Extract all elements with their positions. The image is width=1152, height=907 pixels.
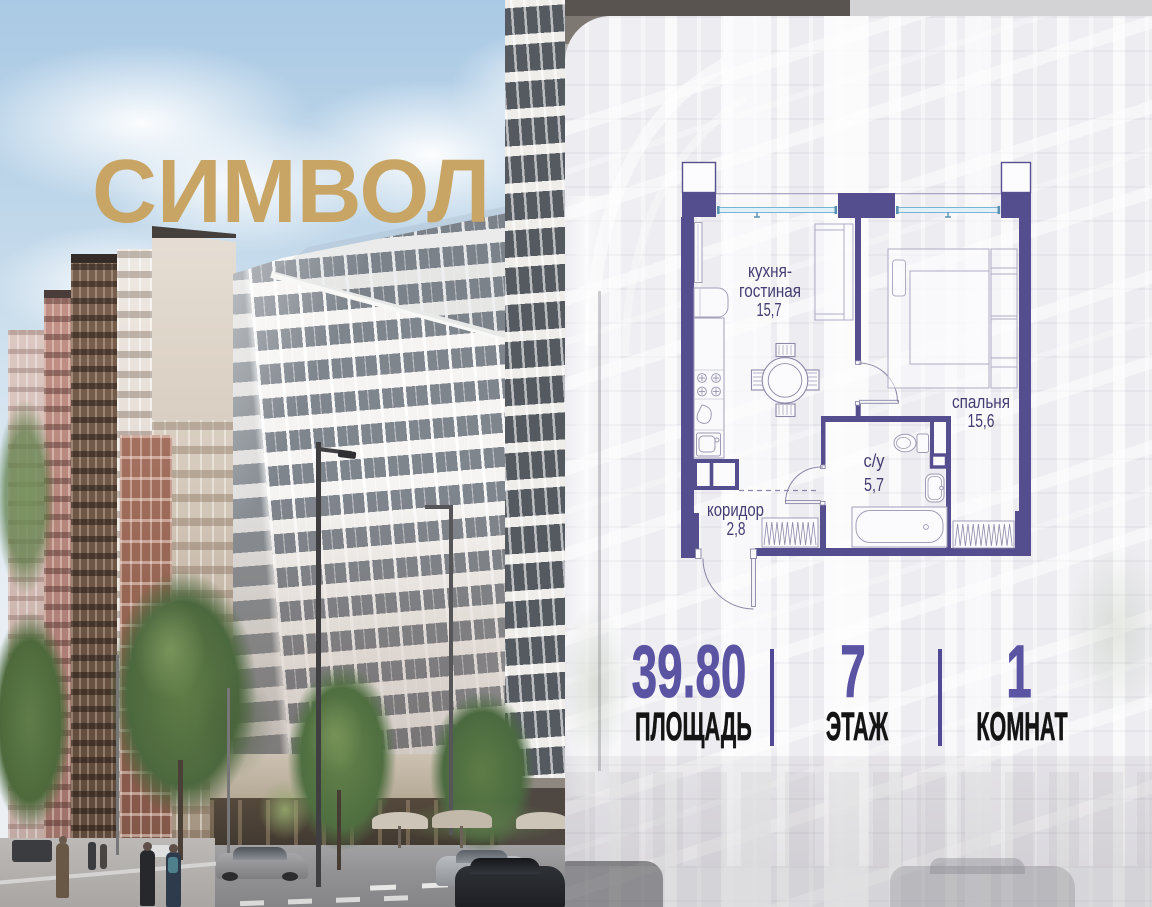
- svg-text:15,7: 15,7: [757, 300, 782, 320]
- svg-text:кухня-: кухня-: [748, 261, 792, 281]
- svg-text:15,6: 15,6: [968, 411, 995, 431]
- svg-text:2,8: 2,8: [727, 519, 746, 539]
- svg-text:коридор: коридор: [707, 500, 764, 520]
- svg-text:гостиная: гостиная: [739, 281, 801, 301]
- svg-text:спальня: спальня: [952, 392, 1010, 412]
- svg-text:5,7: 5,7: [864, 475, 884, 495]
- svg-text:с/у: с/у: [864, 451, 885, 471]
